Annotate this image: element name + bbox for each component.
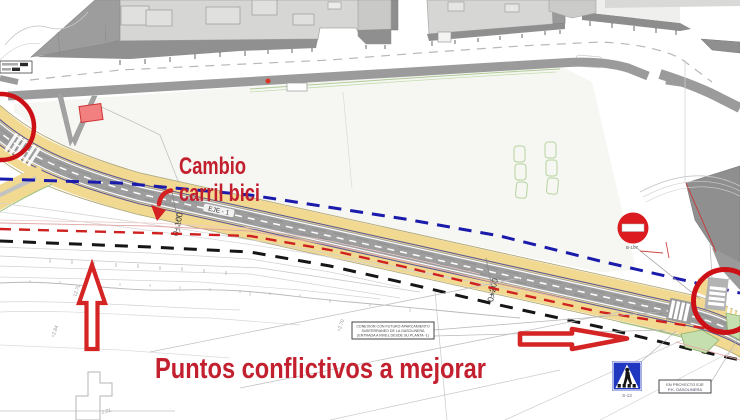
svg-text:carril bici: carril bici [179, 180, 260, 207]
svg-text:CONEXION CON FUTURO APARCAMIEN: CONEXION CON FUTURO APARCAMIENTO [356, 325, 430, 329]
svg-text:P.K. GASOLINERA: P.K. GASOLINERA [668, 387, 702, 392]
svg-text:SUBTERRANEO DE LA GASOLINERA: SUBTERRANEO DE LA GASOLINERA [362, 329, 426, 333]
svg-text:B-107: B-107 [626, 245, 639, 250]
svg-text:Cambio: Cambio [179, 153, 246, 180]
svg-text:S-13: S-13 [622, 393, 632, 398]
svg-text:Puntos conflictivos a mejorar: Puntos conflictivos a mejorar [155, 353, 486, 385]
svg-text:(ENTRADA A NIVEL DESDE SU PLAN: (ENTRADA A NIVEL DESDE SU PLANTA -1) [357, 334, 429, 338]
